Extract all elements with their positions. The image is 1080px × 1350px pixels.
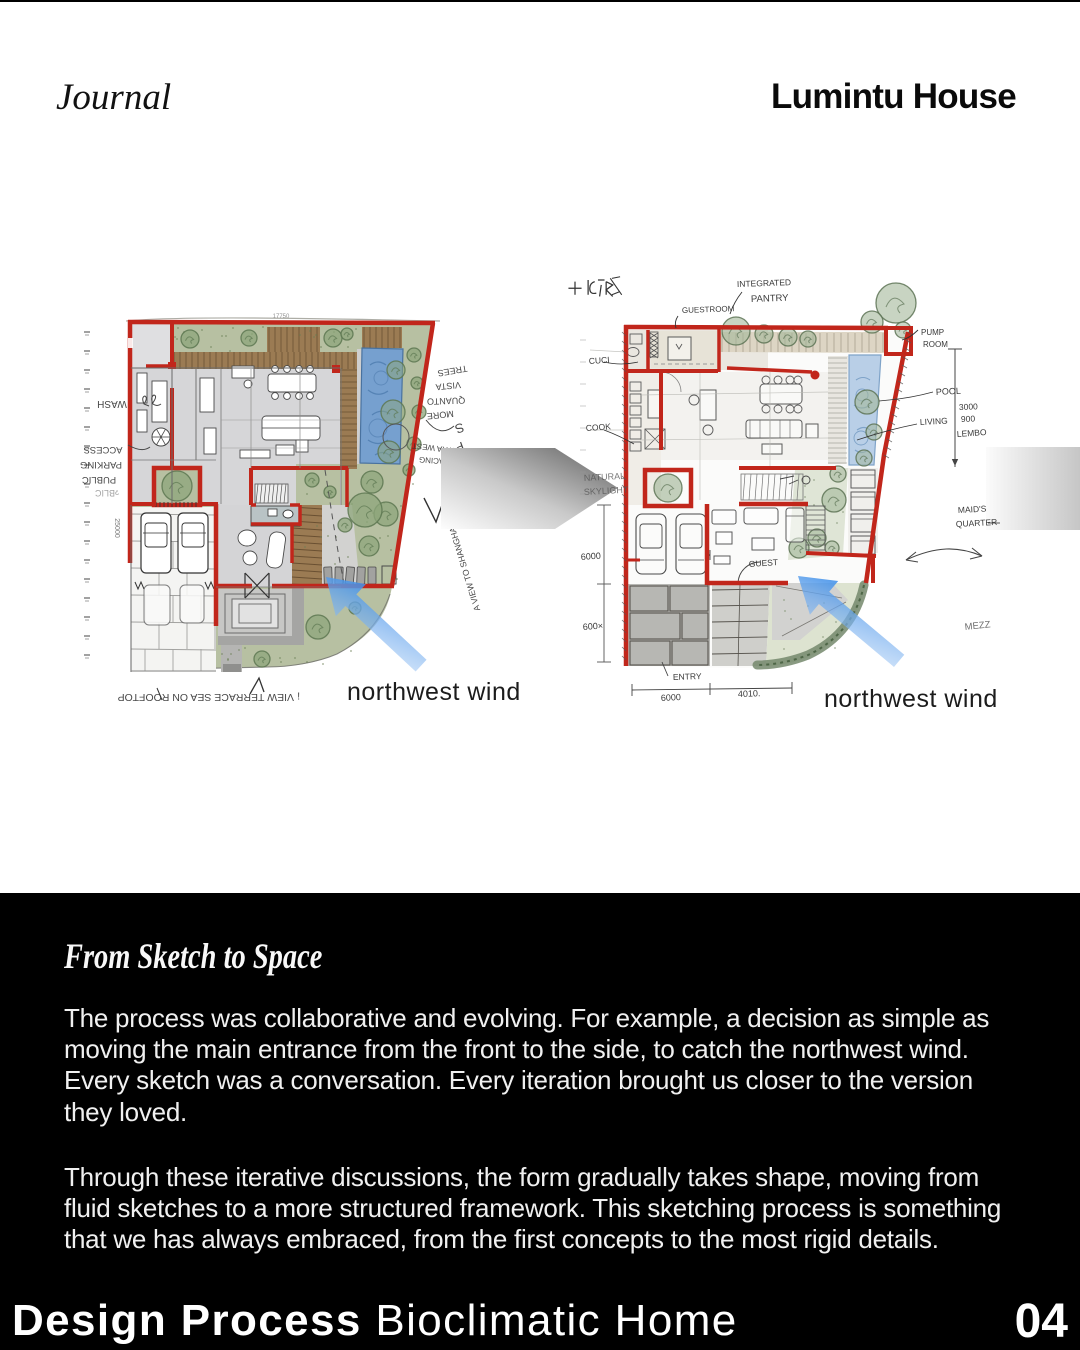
svg-text:6000: 6000	[580, 551, 601, 562]
svg-text:25000: 25000	[113, 518, 120, 538]
svg-text:ACCESS: ACCESS	[83, 444, 122, 455]
svg-text:TREES: TREES	[437, 363, 468, 378]
svg-text:PUMP: PUMP	[921, 328, 944, 337]
svg-text:CUCI: CUCI	[588, 355, 609, 366]
svg-text:ɂBLIC: ɂBLIC	[94, 488, 119, 498]
svg-text:17750: 17750	[273, 314, 290, 320]
svg-text:SKYLIGHT: SKYLIGHT	[584, 485, 629, 497]
svg-text:S: S	[453, 420, 467, 437]
svg-text:PARKING: PARKING	[80, 459, 122, 470]
svg-text:VISTA: VISTA	[435, 380, 461, 392]
svg-text:MEZZ: MEZZ	[964, 619, 991, 633]
svg-text:PANTRY: PANTRY	[751, 293, 790, 305]
svg-text:¡ VIEW TERRACE SEA ON ROOFTOP: ¡ VIEW TERRACE SEA ON ROOFTOP	[118, 691, 301, 703]
svg-text:ROOM: ROOM	[923, 340, 948, 349]
svg-text:POOL: POOL	[936, 386, 962, 397]
svg-text:INTEGRATED: INTEGRATED	[737, 277, 791, 289]
svg-text:ENTRY: ENTRY	[673, 671, 702, 682]
svg-text:900: 900	[961, 414, 976, 424]
svg-text:3000: 3000	[959, 401, 979, 412]
svg-text:MORE: MORE	[426, 409, 454, 422]
svg-text:6000: 6000	[661, 692, 682, 703]
svg-text:NATURAL: NATURAL	[584, 471, 626, 483]
svg-text:LIVING: LIVING	[920, 416, 948, 427]
svg-text:northwest wind: northwest wind	[347, 678, 521, 706]
svg-text:GUESTROOM: GUESTROOM	[682, 304, 735, 315]
svg-text:LEMBO: LEMBO	[956, 427, 987, 439]
svg-text:600×: 600×	[582, 621, 603, 632]
svg-text:4010.: 4010.	[738, 688, 761, 699]
svg-text:PUBLIC: PUBLIC	[82, 474, 116, 485]
svg-text:MAID'S: MAID'S	[958, 503, 987, 514]
svg-text:WASH: WASH	[97, 398, 127, 409]
svg-text:northwest wind: northwest wind	[824, 685, 998, 713]
svg-text:GUEST: GUEST	[748, 557, 778, 569]
svg-text:QUANTO: QUANTO	[427, 395, 466, 406]
